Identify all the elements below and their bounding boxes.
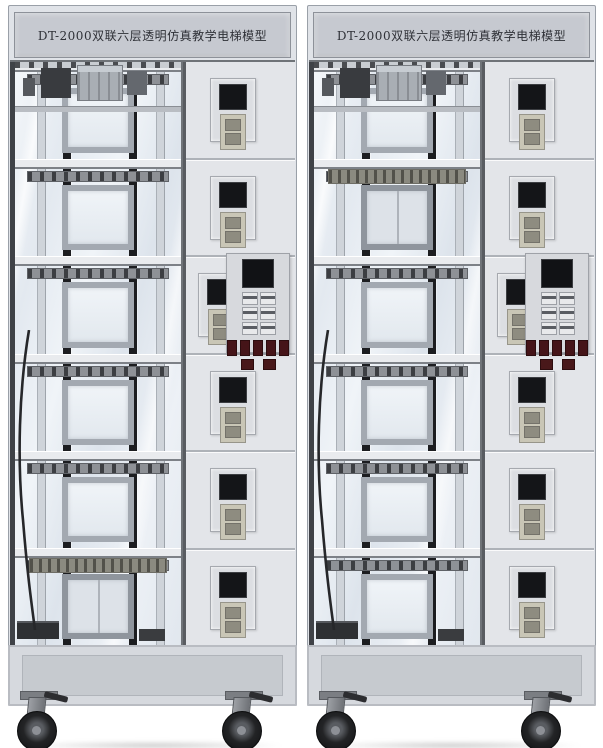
- landing-door-frame: [62, 477, 134, 542]
- floor-shadow: [18, 741, 287, 748]
- hall-call-panel: [210, 566, 256, 630]
- panel-column-section: [186, 160, 295, 258]
- caster-right: [217, 691, 271, 748]
- hall-call-panel: [509, 78, 555, 142]
- car-door-seam: [98, 580, 100, 633]
- landing-door-frame: [62, 574, 134, 639]
- hall-call-button: [225, 217, 241, 229]
- call-button-module: [519, 212, 545, 248]
- call-button-module: [519, 602, 545, 638]
- hall-call-button: [225, 231, 241, 243]
- traveling-cable: [314, 330, 344, 630]
- cop-floor-button: [242, 307, 258, 320]
- floor-indicator-display: [518, 84, 546, 110]
- hall-call-button: [524, 607, 540, 619]
- hall-call-panel: [210, 78, 256, 142]
- governor: [127, 71, 147, 95]
- cop-control-button: [552, 340, 562, 356]
- product-photo-canvas: DT-2000双联六层透明仿真教学电梯模型: [0, 0, 603, 748]
- landing-door-mechanism: [27, 268, 169, 279]
- hall-call-button: [225, 412, 241, 424]
- caster-brake-lever: [343, 691, 368, 703]
- floor-indicator-display: [518, 377, 546, 403]
- cop-floor-button: [260, 292, 276, 305]
- caster-hub: [237, 726, 246, 735]
- pit-buffer: [438, 629, 464, 641]
- base-inset-panel: [321, 655, 582, 696]
- cop-button-grid: [526, 292, 588, 335]
- model-title: DT-2000双联六层透明仿真教学电梯模型: [337, 27, 566, 44]
- shaft-floor-section: [314, 159, 480, 256]
- hall-call-button: [225, 119, 241, 131]
- cop-floor-button: [559, 307, 575, 320]
- call-button-module: [519, 407, 545, 443]
- hall-call-button: [524, 523, 540, 535]
- panel-column-section: [186, 257, 295, 355]
- left-elevator-model: DT-2000双联六层透明仿真教学电梯模型: [8, 5, 297, 701]
- cop-floor-button: [541, 322, 557, 335]
- controller-box: [77, 65, 123, 101]
- caster-hub: [536, 726, 545, 735]
- landing-door-mechanism: [326, 268, 468, 279]
- landing-door-frame: [361, 477, 433, 542]
- cop-control-button: [227, 340, 237, 356]
- elevator-shaft: [10, 62, 183, 645]
- traveling-cable: [15, 330, 45, 630]
- controller-box: [376, 65, 422, 101]
- hall-call-button: [524, 621, 540, 633]
- car-door-seam: [397, 191, 399, 244]
- hall-call-button: [524, 412, 540, 424]
- hall-call-button: [524, 133, 540, 145]
- caster-brake-lever: [44, 691, 69, 703]
- landing-door-frame: [361, 282, 433, 347]
- cop-control-button: [540, 359, 553, 370]
- cop-red-button-row: [227, 340, 289, 356]
- hall-call-panel: [509, 176, 555, 240]
- shaft-floor-section: [15, 159, 181, 256]
- right-elevator-model: DT-2000双联六层透明仿真教学电梯模型: [307, 5, 596, 701]
- governor: [426, 71, 446, 95]
- machine-bracket: [23, 78, 35, 96]
- hall-call-button: [524, 119, 540, 131]
- landing-door-mechanism: [27, 366, 169, 377]
- cop-floor-button: [541, 307, 557, 320]
- title-plate: DT-2000双联六层透明仿真教学电梯模型: [14, 12, 291, 58]
- caster-hub: [331, 726, 340, 735]
- call-button-module: [220, 504, 246, 540]
- machine-bracket: [322, 78, 334, 96]
- cop-control-button: [539, 340, 549, 356]
- floor-indicator-display: [219, 377, 247, 403]
- cop-floor-button: [260, 307, 276, 320]
- machine-room: [15, 62, 181, 112]
- panel-column: [482, 62, 594, 645]
- landing-door-mechanism: [326, 463, 468, 474]
- elevator-shaft: [309, 62, 482, 645]
- car-door-operator: [328, 169, 466, 184]
- hall-call-button: [225, 607, 241, 619]
- landing-door-frame: [62, 185, 134, 250]
- cop-floor-button: [559, 292, 575, 305]
- floor-indicator-display: [518, 572, 546, 598]
- panel-column-section: [485, 550, 594, 646]
- traction-machine: [340, 68, 370, 98]
- floor-indicator-display: [219, 572, 247, 598]
- cop-floor-button: [559, 322, 575, 335]
- floor-indicator-display: [219, 182, 247, 208]
- hall-call-panel: [509, 468, 555, 532]
- model-title: DT-2000双联六层透明仿真教学电梯模型: [38, 27, 267, 44]
- floor-indicator-display: [219, 84, 247, 110]
- floor-sill: [314, 256, 480, 266]
- panel-column-section: [485, 452, 594, 550]
- panel-column-section: [485, 160, 594, 258]
- floor-indicator-display: [518, 474, 546, 500]
- cop-control-button: [240, 340, 250, 356]
- cop-control-button: [263, 359, 276, 370]
- landing-door-frame: [361, 185, 433, 250]
- landing-door-mechanism: [326, 366, 468, 377]
- panel-column-section: [485, 257, 594, 355]
- floor-sill: [15, 256, 181, 266]
- cop-control-button: [578, 340, 588, 356]
- landing-door-frame: [62, 282, 134, 347]
- landing-door-frame: [361, 574, 433, 639]
- car-operating-panel: [525, 253, 589, 353]
- cop-floor-display: [242, 259, 274, 288]
- cop-control-button: [266, 340, 276, 356]
- floor-sill: [15, 159, 181, 169]
- pit-buffer: [139, 629, 165, 641]
- hall-call-button: [225, 133, 241, 145]
- panel-column-section: [485, 62, 594, 160]
- machine-beam: [314, 106, 480, 112]
- panel-column: [183, 62, 295, 645]
- cop-control-button: [526, 340, 536, 356]
- caster-hub: [32, 726, 41, 735]
- hall-call-panel: [509, 371, 555, 435]
- cop-control-button: [562, 359, 575, 370]
- caster-left: [12, 691, 66, 748]
- hall-call-button: [225, 621, 241, 633]
- cabinet-body: [309, 60, 594, 647]
- cop-control-button: [241, 359, 254, 370]
- hall-call-panel: [210, 371, 256, 435]
- hall-call-button: [225, 426, 241, 438]
- floor-indicator-display: [518, 182, 546, 208]
- base-inset-panel: [22, 655, 283, 696]
- traction-machine: [41, 68, 71, 98]
- title-plate: DT-2000双联六层透明仿真教学电梯模型: [313, 12, 590, 58]
- panel-column-section: [186, 452, 295, 550]
- car-operating-panel: [226, 253, 290, 353]
- hall-call-button: [225, 509, 241, 521]
- cop-control-button: [253, 340, 263, 356]
- call-button-module: [519, 114, 545, 150]
- cabinet-body: [10, 60, 295, 647]
- car-door-operator: [29, 558, 167, 573]
- hall-call-button: [524, 231, 540, 243]
- caster-left: [311, 691, 365, 748]
- cop-floor-display: [541, 259, 573, 288]
- cop-red-button-row: [526, 340, 588, 356]
- cop-red-button-row-2: [526, 359, 588, 370]
- call-button-module: [220, 602, 246, 638]
- cop-floor-button: [242, 322, 258, 335]
- cop-floor-button: [260, 322, 276, 335]
- column-floors: [485, 62, 594, 645]
- column-floors: [186, 62, 295, 645]
- landing-door-mechanism: [27, 171, 169, 182]
- floor-sill: [314, 159, 480, 169]
- machine-beam: [15, 106, 181, 112]
- cop-red-button-row-2: [227, 359, 289, 370]
- landing-door-mechanism: [27, 463, 169, 474]
- hall-call-panel: [509, 566, 555, 630]
- landing-door-mechanism: [326, 560, 468, 571]
- cop-floor-button: [541, 292, 557, 305]
- machine-room: [314, 62, 480, 112]
- caster-right: [516, 691, 570, 748]
- call-button-module: [220, 212, 246, 248]
- call-button-module: [519, 504, 545, 540]
- hall-call-button: [524, 509, 540, 521]
- caster-brake-lever: [249, 691, 274, 703]
- cop-floor-button: [242, 292, 258, 305]
- hall-call-button: [524, 217, 540, 229]
- floor-shadow: [317, 741, 586, 748]
- cop-control-button: [565, 340, 575, 356]
- call-button-module: [220, 407, 246, 443]
- cop-button-grid: [227, 292, 289, 335]
- landing-door-frame: [361, 380, 433, 445]
- call-button-module: [220, 114, 246, 150]
- caster-brake-lever: [548, 691, 573, 703]
- landing-door-frame: [62, 380, 134, 445]
- hall-call-button: [225, 523, 241, 535]
- hall-call-button: [524, 426, 540, 438]
- hall-call-panel: [210, 176, 256, 240]
- panel-column-section: [186, 550, 295, 646]
- panel-column-section: [186, 62, 295, 160]
- floor-indicator-display: [219, 474, 247, 500]
- hall-call-panel: [210, 468, 256, 532]
- cop-control-button: [279, 340, 289, 356]
